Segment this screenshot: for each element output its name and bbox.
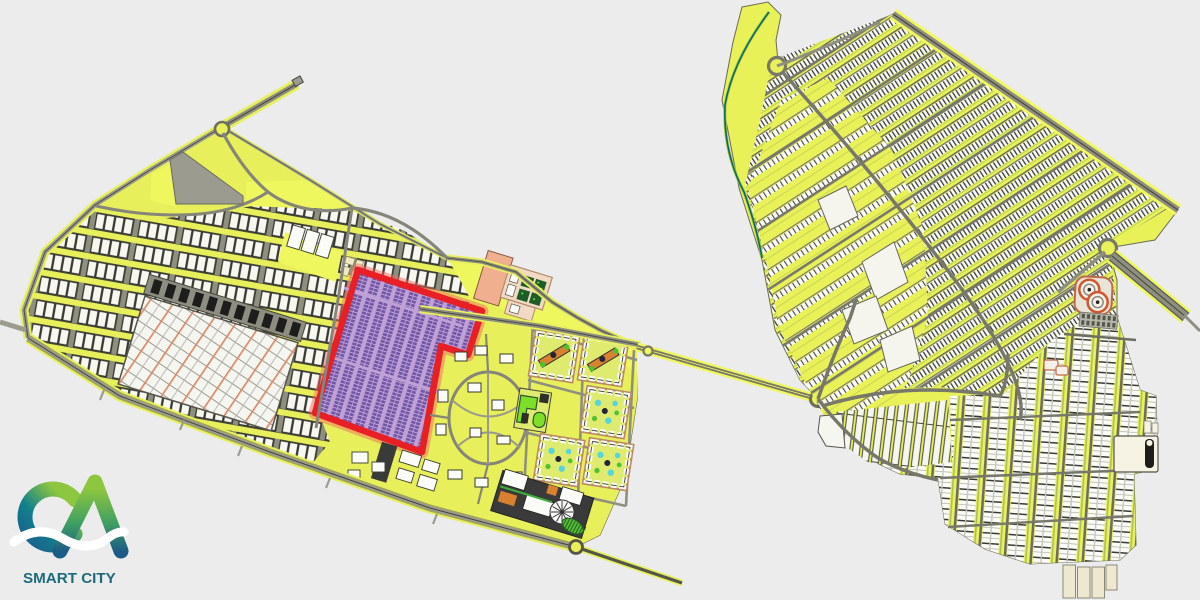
svg-text:SMART CITY: SMART CITY (23, 570, 116, 587)
